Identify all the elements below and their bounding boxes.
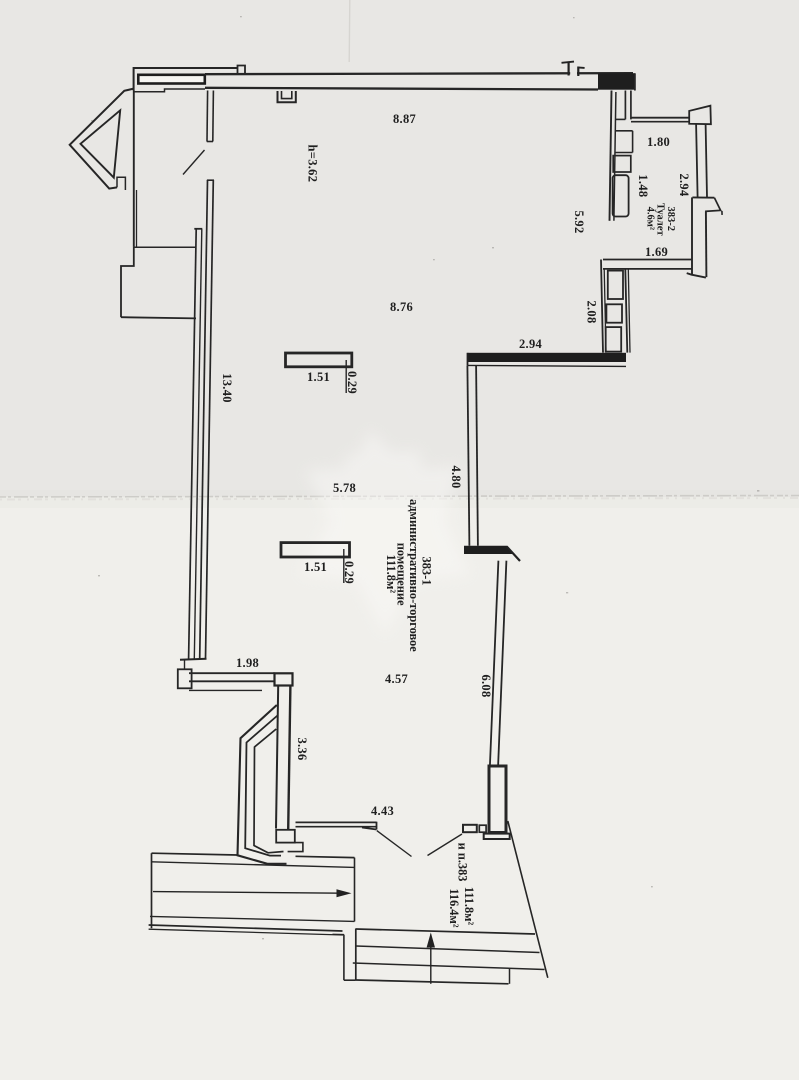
svg-text:1.48: 1.48 [636,174,650,197]
svg-text:и п.383: и п.383 [456,843,470,882]
svg-text:383-2: 383-2 [665,207,676,232]
svg-text:8.87: 8.87 [393,112,416,126]
svg-text:1.69: 1.69 [645,245,668,259]
svg-text:6.08: 6.08 [479,674,493,697]
svg-text:2.94: 2.94 [677,173,691,197]
svg-text:2.08: 2.08 [585,300,599,323]
svg-text:3.36: 3.36 [295,737,309,760]
svg-text:1.51: 1.51 [307,370,330,384]
svg-text:4.43: 4.43 [371,804,394,818]
svg-text:116.4м²: 116.4м² [447,888,461,927]
svg-text:4.80: 4.80 [449,465,463,488]
svg-text:2.94: 2.94 [519,337,543,351]
svg-text:1.51: 1.51 [304,560,327,574]
svg-text:4.6м²: 4.6м² [645,207,656,230]
svg-text:5.92: 5.92 [572,210,586,233]
svg-text:8.76: 8.76 [390,300,413,314]
svg-text:111.8м²: 111.8м² [384,554,398,593]
svg-text:13.40: 13.40 [220,373,234,403]
svg-text:5.78: 5.78 [333,481,356,495]
svg-text:0.29: 0.29 [342,561,356,584]
svg-text:0.29: 0.29 [345,371,359,394]
svg-text:1.80: 1.80 [647,135,670,149]
svg-text:4.57: 4.57 [385,672,408,686]
svg-text:h=3.62: h=3.62 [306,145,320,183]
svg-text:111.8м²: 111.8м² [462,887,476,926]
svg-text:1.98: 1.98 [236,656,259,670]
